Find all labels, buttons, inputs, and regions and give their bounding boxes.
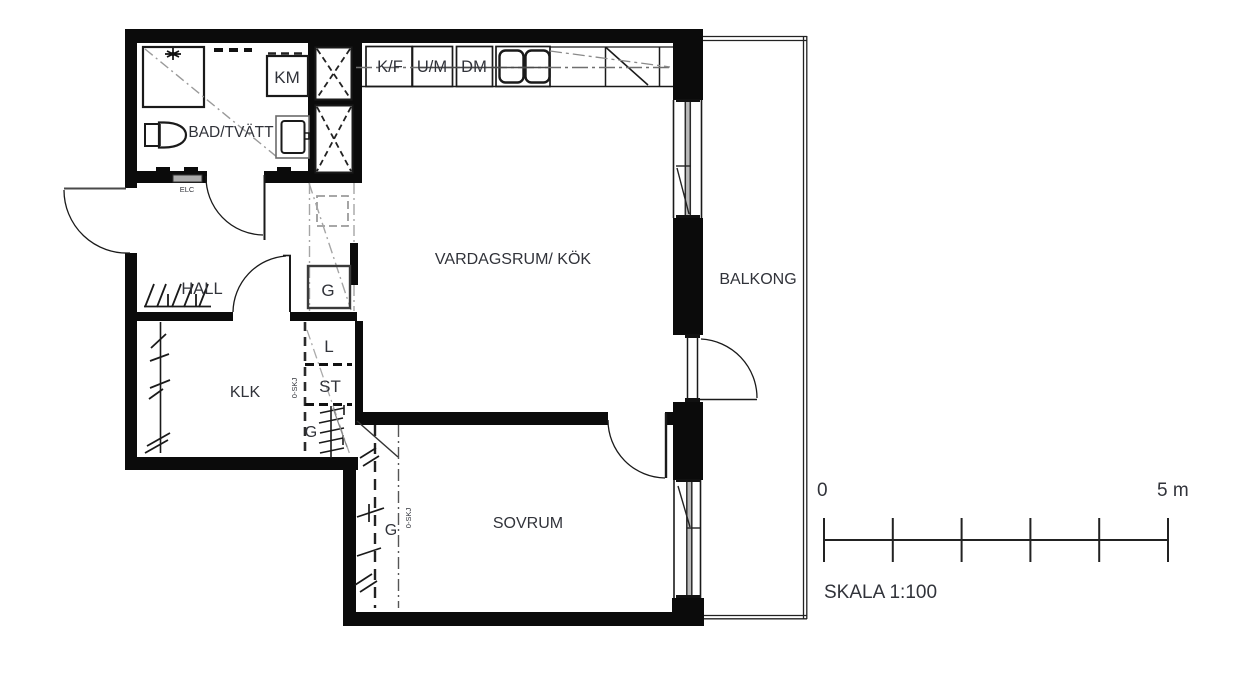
svg-text:SOVRUM: SOVRUM xyxy=(493,515,563,532)
svg-text:SKALA 1:100: SKALA 1:100 xyxy=(824,582,937,603)
svg-text:G: G xyxy=(321,281,334,300)
svg-text:KM: KM xyxy=(274,68,300,87)
svg-text:KLK: KLK xyxy=(230,384,261,401)
svg-text:G: G xyxy=(385,522,397,539)
svg-text:0: 0 xyxy=(817,480,828,501)
svg-text:K/F: K/F xyxy=(377,58,403,76)
svg-text:L: L xyxy=(324,337,333,356)
svg-text:5 m: 5 m xyxy=(1157,480,1189,501)
svg-text:DM: DM xyxy=(461,58,487,76)
svg-text:ST: ST xyxy=(319,377,341,396)
svg-text:0-SKJ: 0-SKJ xyxy=(290,378,299,399)
svg-text:G: G xyxy=(305,424,317,441)
svg-text:BALKONG: BALKONG xyxy=(719,271,796,288)
svg-text:0-SKJ: 0-SKJ xyxy=(404,508,413,529)
svg-text:HALL: HALL xyxy=(181,280,222,298)
svg-text:ELC: ELC xyxy=(180,185,195,194)
svg-text:BAD/TVÄTT: BAD/TVÄTT xyxy=(188,124,274,141)
svg-text:VARDAGSRUM/ KÖK: VARDAGSRUM/ KÖK xyxy=(435,250,592,268)
svg-text:U/M: U/M xyxy=(417,58,447,76)
